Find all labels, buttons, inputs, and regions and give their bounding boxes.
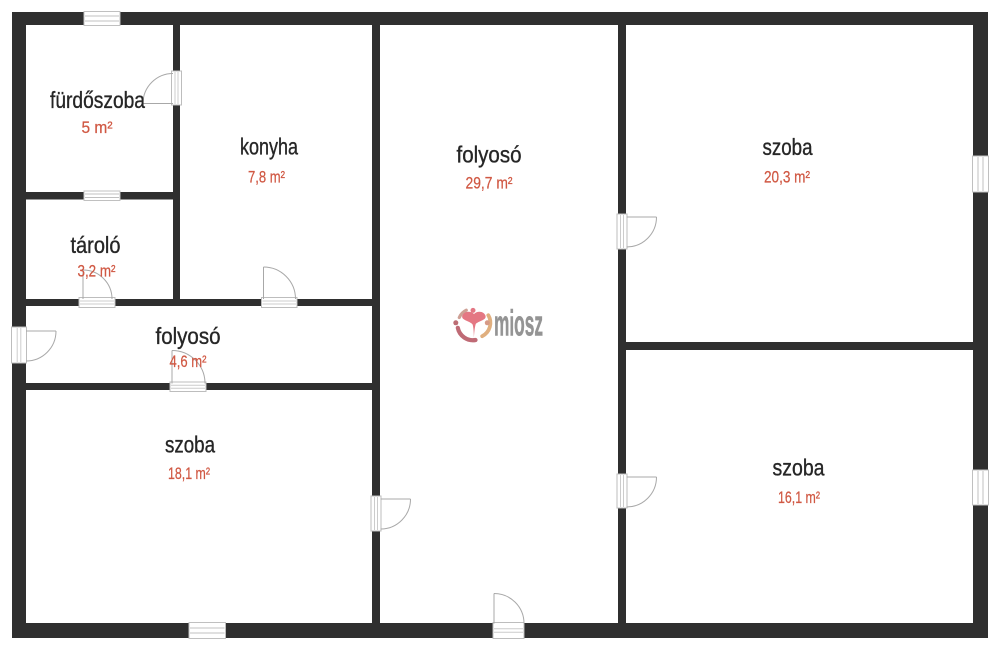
svg-text:7,8 m²: 7,8 m² — [248, 167, 285, 186]
svg-text:29,7 m²: 29,7 m² — [466, 173, 513, 192]
svg-text:fürdőszoba: fürdőszoba — [50, 87, 145, 113]
svg-text:konyha: konyha — [240, 134, 298, 160]
svg-text:szoba: szoba — [165, 432, 215, 458]
svg-text:tároló: tároló — [71, 232, 121, 258]
svg-text:20,3 m²: 20,3 m² — [764, 167, 810, 186]
svg-text:folyosó: folyosó — [457, 142, 522, 168]
svg-text:3,2 m²: 3,2 m² — [78, 262, 116, 281]
svg-text:miosz: miosz — [494, 303, 543, 344]
svg-text:szoba: szoba — [763, 134, 813, 160]
svg-text:4,6 m²: 4,6 m² — [170, 352, 207, 371]
svg-text:szoba: szoba — [773, 455, 825, 481]
svg-text:18,1 m²: 18,1 m² — [168, 464, 210, 483]
svg-text:16,1 m²: 16,1 m² — [778, 488, 820, 507]
svg-text:5 m²: 5 m² — [82, 118, 113, 137]
svg-text:folyosó: folyosó — [156, 323, 221, 349]
